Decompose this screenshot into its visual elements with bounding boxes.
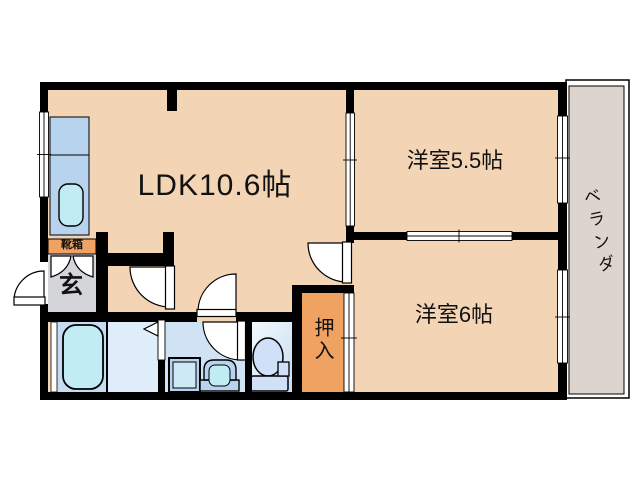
wall-closet-top: [292, 285, 354, 293]
bath-dressing-divider: [106, 322, 108, 392]
wall-bottom: [40, 392, 567, 400]
wall-closet-left: [292, 293, 302, 392]
room-label-ldk: LDK10.6帖: [115, 170, 315, 202]
wall-center-upper: [346, 90, 354, 113]
room-label-western-5-5: 洋室5.5帖: [395, 149, 515, 172]
bathroom-side-panel: [51, 322, 57, 392]
wall-sanitary-left: [48, 312, 197, 322]
window-room6: [555, 270, 570, 363]
wall-entrance-right: [96, 232, 108, 317]
window-room55: [555, 116, 570, 203]
wall-dressing-lower: [158, 360, 165, 392]
partition-room55-room6: [407, 230, 512, 243]
washing-machine-pan: [169, 358, 200, 392]
bathtub: [63, 325, 103, 389]
wall-hall-horizontal: [108, 253, 163, 266]
kitchen-sink: [59, 184, 83, 226]
wall-hall-stub: [163, 232, 174, 266]
floorplan: LDK10.6帖 洋室5.5帖 洋室6帖 ベランダ 押入 玄 靴箱: [0, 0, 638, 480]
dressing-doorway: [158, 320, 165, 360]
window-kitchen: [37, 112, 51, 197]
room-label-closet: 押入: [311, 317, 332, 363]
wash-basin: [200, 360, 239, 391]
room-label-western-6: 洋室6帖: [394, 303, 514, 326]
door-entrance: [14, 271, 45, 305]
wall-stub-top: [167, 90, 177, 111]
room-label-entrance: 玄: [59, 273, 83, 298]
kitchen-counter: [50, 117, 89, 235]
room-label-shoe-box: 靴箱: [48, 240, 96, 252]
wall-top: [40, 82, 567, 90]
